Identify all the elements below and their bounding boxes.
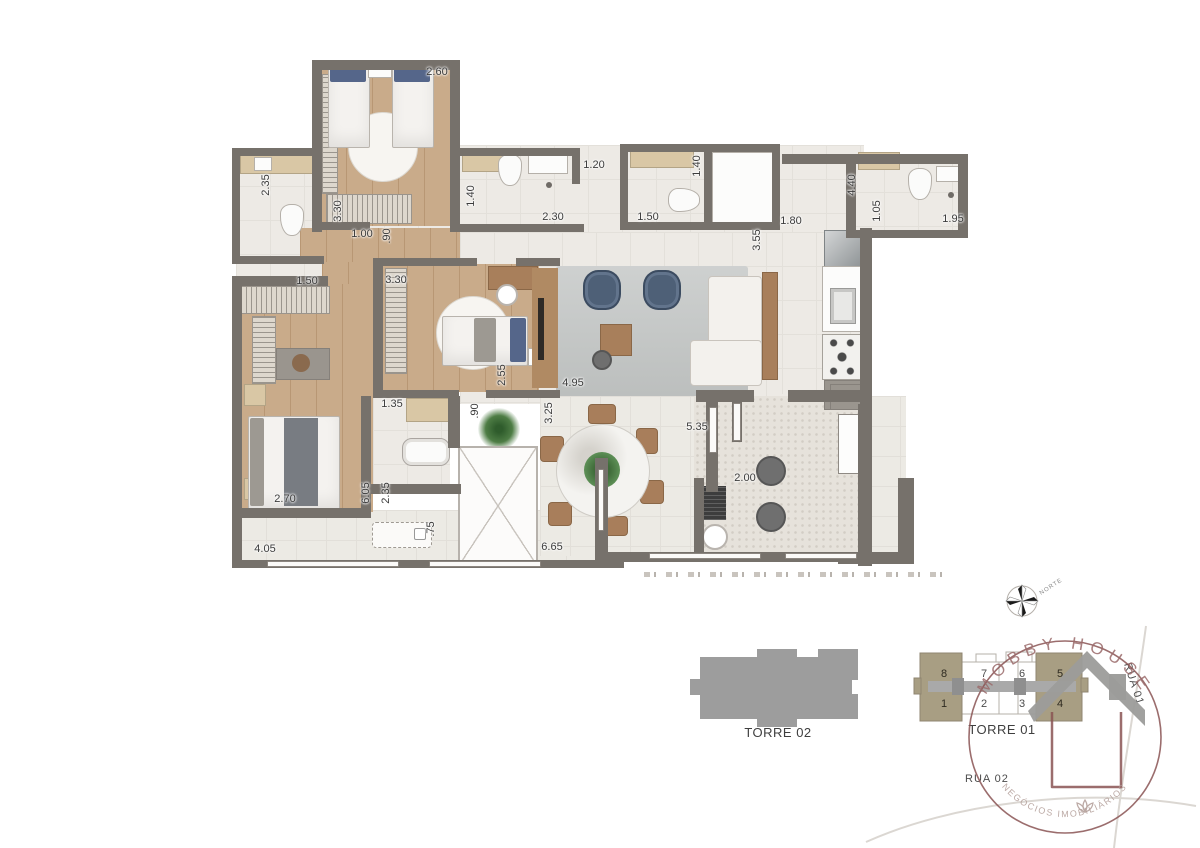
floor-plan-page: 2.602.353.301.00.901.501.402.301.201.501… [0,0,1200,848]
watermark-logo: MOBBY HOUSE NEGÓCIOS IMOBILIÁRIOS [0,0,1200,848]
logo-roof [1028,651,1145,726]
logo-house-outline [1052,712,1121,787]
